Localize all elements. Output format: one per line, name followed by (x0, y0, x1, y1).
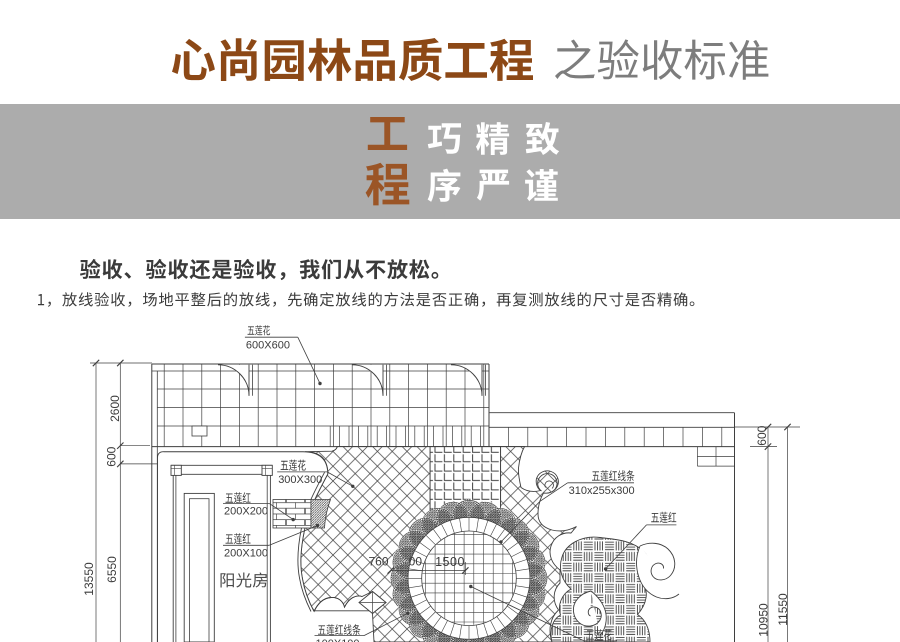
svg-text:6550: 6550 (105, 556, 119, 583)
svg-text:2600: 2600 (108, 395, 122, 422)
svg-text:600: 600 (755, 425, 769, 445)
svg-text:760: 760 (368, 555, 388, 569)
svg-text:11550: 11550 (776, 593, 790, 626)
svg-text:200X200: 200X200 (224, 506, 268, 518)
svg-text:600: 600 (104, 446, 118, 466)
svg-text:300X300: 300X300 (278, 474, 322, 486)
svg-text:600X600: 600X600 (246, 340, 290, 352)
svg-text:10950: 10950 (757, 603, 771, 637)
svg-text:200X100: 200X100 (224, 548, 268, 560)
svg-text:100X100: 100X100 (316, 638, 360, 642)
svg-text:310x255x300: 310x255x300 (569, 485, 635, 497)
svg-text:13550: 13550 (82, 562, 96, 596)
svg-text:1500: 1500 (435, 555, 465, 569)
